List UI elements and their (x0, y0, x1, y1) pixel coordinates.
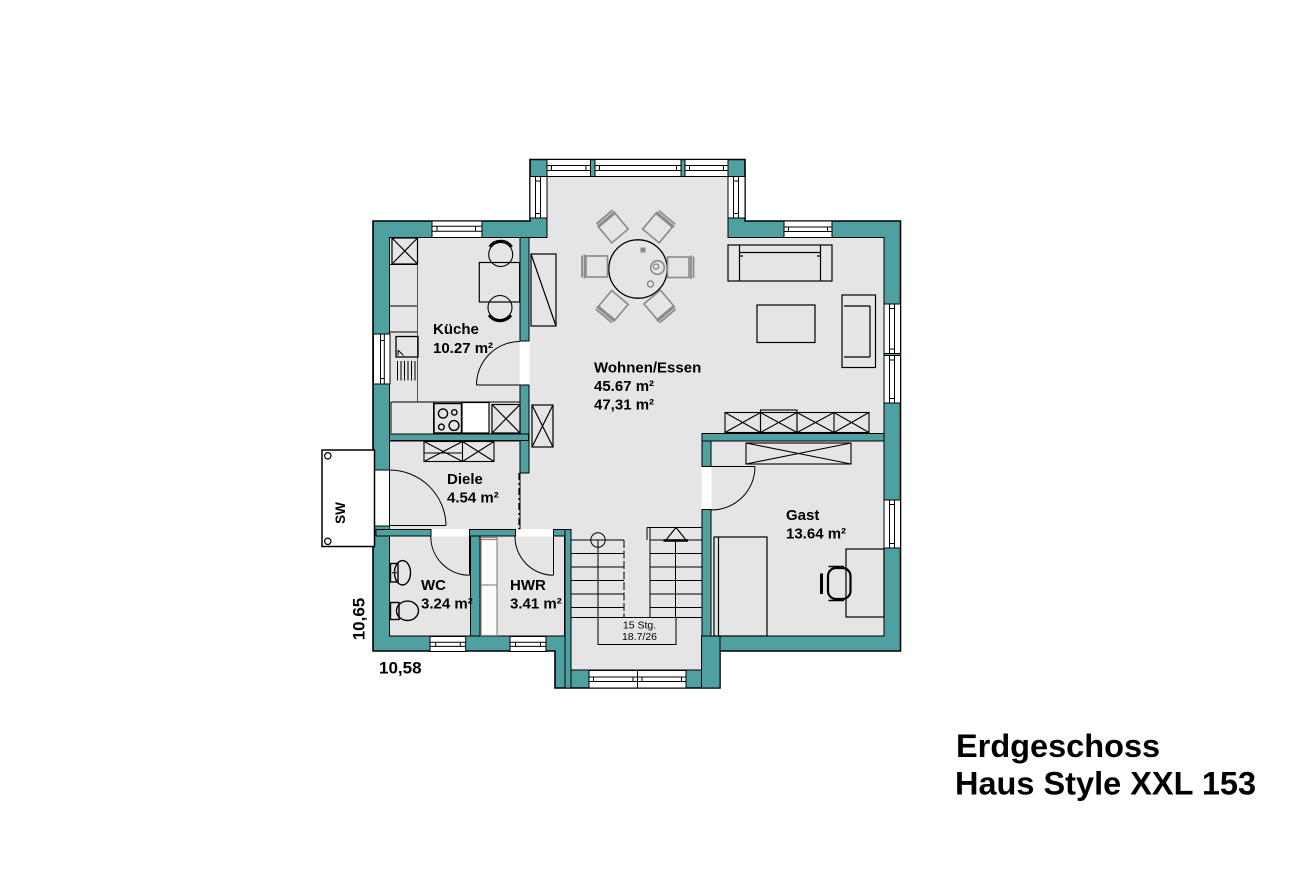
svg-text:HWR: HWR (510, 577, 546, 594)
svg-text:Wohnen/Essen: Wohnen/Essen (594, 360, 701, 377)
svg-text:Haus Style XXL 153: Haus Style XXL 153 (955, 766, 1256, 802)
svg-text:18.7/26: 18.7/26 (622, 631, 657, 643)
svg-text:10,65: 10,65 (350, 598, 369, 641)
svg-text:3.24 m²: 3.24 m² (421, 596, 473, 613)
svg-text:10.27 m²: 10.27 m² (433, 340, 493, 357)
svg-text:13.64 m²: 13.64 m² (786, 526, 846, 543)
svg-text:Gast: Gast (786, 507, 819, 524)
svg-text:4.54 m²: 4.54 m² (447, 490, 499, 507)
svg-text:45.67 m²: 45.67 m² (594, 378, 654, 395)
svg-text:Küche: Küche (433, 321, 479, 338)
svg-text:Diele: Diele (447, 471, 483, 488)
svg-text:SW: SW (333, 502, 348, 524)
svg-text:47,31 m²: 47,31 m² (594, 397, 654, 414)
svg-text:Erdgeschoss: Erdgeschoss (956, 728, 1160, 764)
svg-text:3.41 m²: 3.41 m² (510, 596, 562, 613)
svg-text:10,58: 10,58 (379, 659, 422, 678)
svg-text:WC: WC (421, 577, 446, 594)
svg-text:15 Stg.: 15 Stg. (623, 620, 656, 632)
